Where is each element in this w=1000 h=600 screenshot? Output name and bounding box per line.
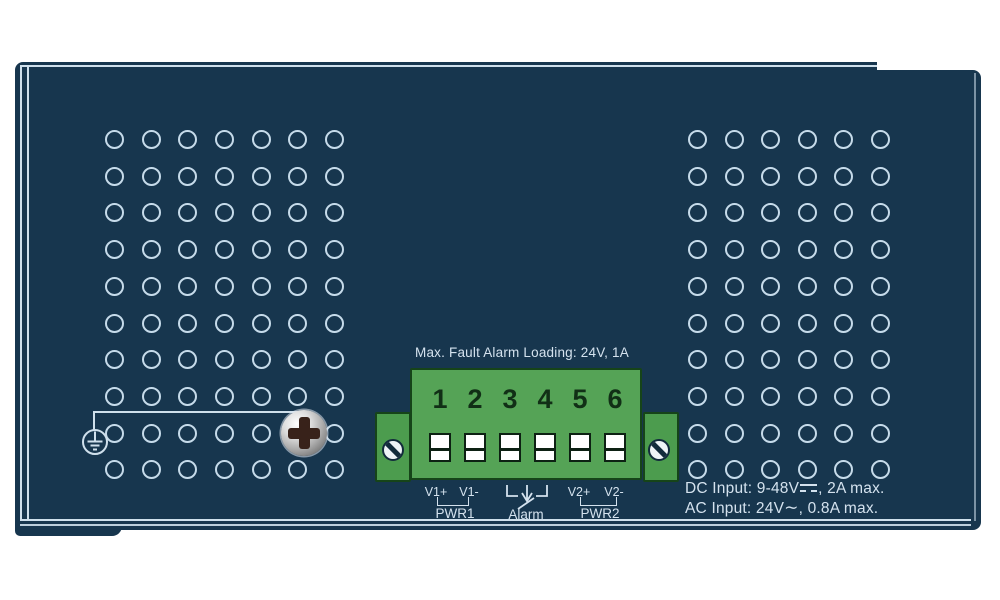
vent-hole [871, 350, 890, 369]
vent-hole [871, 460, 890, 479]
ground-wire-horizontal [93, 411, 305, 413]
vent-hole [798, 350, 817, 369]
vent-hole [215, 424, 234, 443]
vent-hole [798, 387, 817, 406]
vent-hole [215, 314, 234, 333]
vent-hole [871, 240, 890, 259]
vent-hole [688, 424, 707, 443]
vent-hole [725, 130, 744, 149]
slotted-screw-icon [382, 439, 404, 461]
vent-hole [871, 387, 890, 406]
vent-hole [215, 130, 234, 149]
panel-edge-bottom-line-lower [20, 524, 971, 526]
vent-hole [725, 350, 744, 369]
vent-hole [798, 167, 817, 186]
vent-hole [142, 424, 161, 443]
vent-hole [871, 314, 890, 333]
panel-edge-top-line [20, 65, 877, 67]
vent-hole [761, 424, 780, 443]
vent-hole [834, 387, 853, 406]
slotted-screw-icon [648, 439, 670, 461]
vent-hole [725, 424, 744, 443]
vent-hole [178, 314, 197, 333]
chassis-top-panel-right-step [874, 70, 981, 530]
vent-hole [142, 277, 161, 296]
vent-hole [871, 277, 890, 296]
vent-hole [798, 130, 817, 149]
vent-hole [834, 130, 853, 149]
vent-hole [105, 167, 124, 186]
vent-hole [325, 277, 344, 296]
vent-hole [252, 240, 271, 259]
vent-hole [252, 460, 271, 479]
terminal-clamp-line [501, 448, 519, 451]
power-ratings: DC Input: 9-48V, 2A max. AC Input: 24V∼,… [685, 480, 885, 518]
vent-hole [142, 350, 161, 369]
vent-hole [725, 460, 744, 479]
vent-hole [834, 424, 853, 443]
device-illustration: Max. Fault Alarm Loading: 24V, 1A 123456… [0, 0, 1000, 600]
vent-hole [178, 277, 197, 296]
vent-hole [252, 387, 271, 406]
vent-hole [142, 167, 161, 186]
vent-hole [798, 203, 817, 222]
vent-hole [105, 130, 124, 149]
screw-terminal [499, 433, 521, 462]
vent-hole [725, 277, 744, 296]
vent-hole [325, 130, 344, 149]
terminal-clamp-line [536, 448, 554, 451]
vent-hole [178, 424, 197, 443]
vent-hole [215, 240, 234, 259]
vent-hole [105, 240, 124, 259]
vent-hole [325, 314, 344, 333]
vent-hole [325, 167, 344, 186]
terminal-number: 5 [565, 386, 595, 413]
pwr2-label: PWR2 [560, 506, 640, 521]
pwr2-bracket [580, 497, 617, 506]
vent-hole [725, 240, 744, 259]
ground-terminal-icon [81, 428, 109, 456]
vent-hole [761, 240, 780, 259]
vent-hole [871, 203, 890, 222]
vent-hole [252, 203, 271, 222]
vent-hole [834, 277, 853, 296]
panel-edge-right-line [974, 73, 976, 521]
terminal-clamp-line [606, 448, 624, 451]
vent-hole [761, 130, 780, 149]
pwr1-label: PWR1 [415, 506, 495, 521]
dc-input-rating: DC Input: 9-48V, 2A max. [685, 480, 885, 499]
screw-terminal [569, 433, 591, 462]
vent-hole [688, 277, 707, 296]
vent-hole [252, 130, 271, 149]
vent-hole [288, 314, 307, 333]
terminal-number: 1 [425, 386, 455, 413]
terminal-number: 6 [600, 386, 630, 413]
vent-hole [798, 240, 817, 259]
vent-hole [142, 130, 161, 149]
dc-input-text: DC Input: 9-48V [685, 480, 799, 497]
vent-hole [725, 314, 744, 333]
vent-hole [142, 387, 161, 406]
vent-hole [325, 240, 344, 259]
vent-hole [142, 203, 161, 222]
vent-hole [761, 167, 780, 186]
vent-hole [252, 277, 271, 296]
terminal-number: 3 [495, 386, 525, 413]
vent-hole [834, 314, 853, 333]
alarm-label: Alarm [486, 507, 566, 522]
vent-hole [325, 350, 344, 369]
vent-hole [215, 277, 234, 296]
vent-hole [688, 130, 707, 149]
vent-hole [688, 167, 707, 186]
dc-input-max: , 2A max. [818, 480, 884, 497]
vent-hole [834, 240, 853, 259]
phillips-screw-icon [281, 410, 327, 456]
vent-hole [252, 314, 271, 333]
vent-hole [798, 424, 817, 443]
vent-hole [252, 424, 271, 443]
vent-hole [761, 277, 780, 296]
screw-terminal [464, 433, 486, 462]
vent-hole [105, 387, 124, 406]
vent-hole [688, 387, 707, 406]
vent-hole [871, 424, 890, 443]
vent-hole [288, 277, 307, 296]
vent-hole [215, 350, 234, 369]
vent-hole [105, 277, 124, 296]
vent-hole [325, 387, 344, 406]
screw-cross-bar [299, 417, 310, 449]
vent-hole [871, 167, 890, 186]
screw-terminal [604, 433, 626, 462]
ac-input-rating: AC Input: 24V∼, 0.8A max. [685, 499, 885, 519]
vent-hole [761, 314, 780, 333]
vent-hole [798, 460, 817, 479]
screw-terminal [429, 433, 451, 462]
vent-hole [288, 387, 307, 406]
vent-hole [105, 314, 124, 333]
vent-hole [142, 314, 161, 333]
vent-hole [252, 350, 271, 369]
direct-current-symbol-icon [800, 482, 817, 494]
terminal-block: 123456 [410, 368, 642, 480]
vent-hole [688, 240, 707, 259]
vent-hole [725, 203, 744, 222]
ac-input-text: AC Input: 24V [685, 500, 784, 517]
vent-hole [178, 167, 197, 186]
vent-hole [325, 424, 344, 443]
ac-input-max: , 0.8A max. [799, 500, 879, 517]
vent-hole [725, 387, 744, 406]
screw-terminal [534, 433, 556, 462]
vent-hole [725, 167, 744, 186]
vent-hole [798, 314, 817, 333]
vent-hole [288, 167, 307, 186]
terminal-clamp-line [466, 448, 484, 451]
pwr1-bracket [437, 497, 469, 506]
panel-edge-left-line-outer [20, 65, 22, 521]
vent-hole [142, 460, 161, 479]
panel-edge-left-line-inner [27, 65, 29, 521]
alternating-current-symbol-icon: ∼ [784, 498, 798, 517]
terminal-clamp-line [431, 448, 449, 451]
vent-hole [834, 167, 853, 186]
vent-hole [142, 240, 161, 259]
vent-hole [761, 387, 780, 406]
vent-hole [252, 167, 271, 186]
vent-hole [798, 277, 817, 296]
alarm-loading-note: Max. Fault Alarm Loading: 24V, 1A [372, 345, 672, 360]
terminal-clamp-line [571, 448, 589, 451]
vent-hole [688, 314, 707, 333]
vent-hole [215, 167, 234, 186]
vent-hole [215, 387, 234, 406]
terminal-number: 2 [460, 386, 490, 413]
terminal-number: 4 [530, 386, 560, 413]
vent-hole [871, 130, 890, 149]
